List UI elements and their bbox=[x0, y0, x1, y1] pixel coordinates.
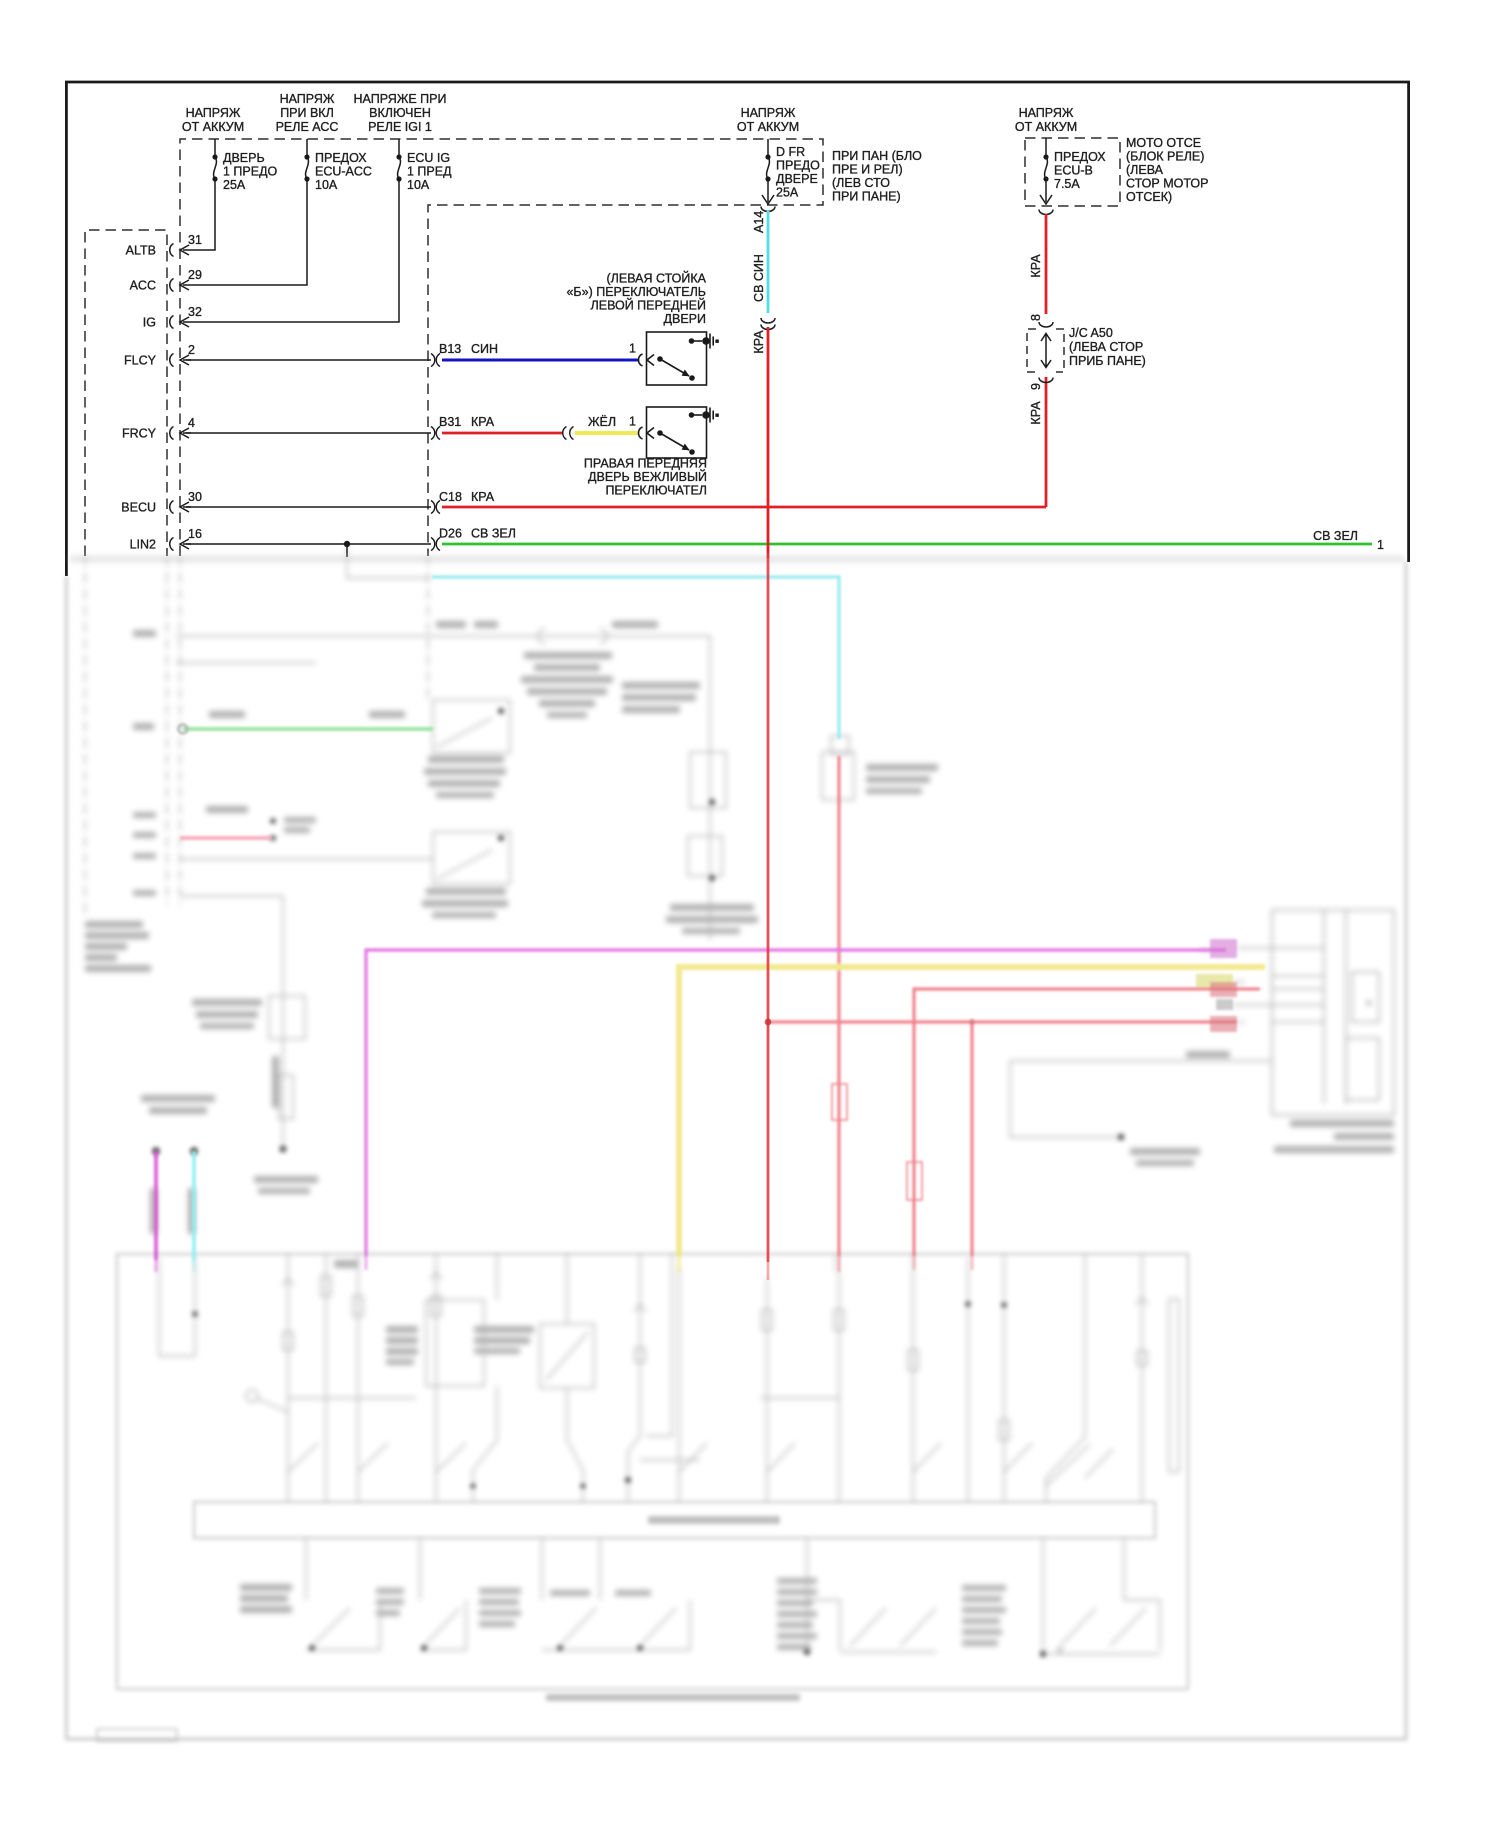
svg-text:ЖЁЛ: ЖЁЛ bbox=[588, 415, 616, 429]
svg-text:ECU-ACC: ECU-ACC bbox=[315, 165, 372, 179]
svg-text:ACC: ACC bbox=[130, 279, 156, 293]
svg-text:НАПРЯЖ: НАПРЯЖ bbox=[186, 106, 241, 120]
svg-text:D26: D26 bbox=[439, 527, 462, 541]
svg-text:КРА: КРА bbox=[1029, 401, 1043, 425]
svg-text:РЕЛЕ IGI 1: РЕЛЕ IGI 1 bbox=[368, 120, 432, 134]
svg-text:ALTB: ALTB bbox=[126, 244, 156, 258]
svg-text:29: 29 bbox=[188, 268, 202, 282]
svg-text:1 ПРЕД: 1 ПРЕД bbox=[407, 165, 452, 179]
svg-text:1: 1 bbox=[629, 415, 636, 429]
svg-text:FRCY: FRCY bbox=[122, 427, 157, 441]
svg-text:ПРЕДОХ: ПРЕДОХ bbox=[315, 151, 367, 165]
svg-text:10A: 10A bbox=[315, 178, 338, 192]
svg-text:НАПРЯЖ: НАПРЯЖ bbox=[741, 106, 796, 120]
svg-text:8: 8 bbox=[1029, 314, 1043, 321]
svg-text:30: 30 bbox=[188, 490, 202, 504]
svg-text:ПРЕДОХ: ПРЕДОХ bbox=[1054, 150, 1106, 164]
svg-text:1: 1 bbox=[629, 342, 636, 356]
svg-text:КРА: КРА bbox=[752, 330, 766, 354]
svg-text:ПРИ ВКЛ: ПРИ ВКЛ bbox=[280, 106, 334, 120]
svg-text:(ЛЕВА: (ЛЕВА bbox=[1126, 163, 1164, 177]
svg-text:РЕЛЕ АСС: РЕЛЕ АСС bbox=[276, 120, 339, 134]
svg-text:ПРИ ПАН (БЛО: ПРИ ПАН (БЛО bbox=[832, 149, 922, 163]
svg-text:10A: 10A bbox=[407, 178, 430, 192]
svg-text:25A: 25A bbox=[223, 178, 246, 192]
svg-text:9: 9 bbox=[1029, 383, 1043, 390]
svg-text:1: 1 bbox=[1377, 538, 1384, 552]
svg-text:ECU IG: ECU IG bbox=[407, 151, 450, 165]
svg-text:(ЛЕВ СТО: (ЛЕВ СТО bbox=[832, 176, 890, 190]
svg-text:25A: 25A bbox=[776, 186, 799, 200]
svg-text:LIN2: LIN2 bbox=[130, 538, 156, 552]
svg-text:2: 2 bbox=[188, 343, 195, 357]
svg-text:1 ПРЕДО: 1 ПРЕДО bbox=[223, 165, 278, 179]
svg-text:СИН: СИН bbox=[471, 342, 498, 356]
svg-text:НАПРЯЖ: НАПРЯЖ bbox=[1019, 106, 1074, 120]
svg-text:ПРИБ ПАНЕ): ПРИБ ПАНЕ) bbox=[1069, 354, 1146, 368]
svg-text:ПРЕ И РЕЛ): ПРЕ И РЕЛ) bbox=[832, 163, 903, 177]
svg-text:C18: C18 bbox=[439, 490, 462, 504]
svg-text:СВ ЗЕЛ: СВ ЗЕЛ bbox=[471, 527, 516, 541]
svg-text:СТОР МОТОР: СТОР МОТОР bbox=[1126, 177, 1209, 191]
svg-text:КРА: КРА bbox=[471, 490, 495, 504]
svg-text:ОТ АККУМ: ОТ АККУМ bbox=[1015, 120, 1077, 134]
svg-text:ОТСЕК): ОТСЕК) bbox=[1126, 190, 1172, 204]
svg-text:ДВЕРЬ: ДВЕРЬ bbox=[223, 151, 265, 165]
svg-text:КРА: КРА bbox=[471, 415, 495, 429]
svg-text:D FR: D FR bbox=[776, 145, 805, 159]
svg-text:BECU: BECU bbox=[121, 501, 156, 515]
svg-text:ПРИ ПАНЕ): ПРИ ПАНЕ) bbox=[832, 190, 901, 204]
svg-text:МОТО ОТСЕ: МОТО ОТСЕ bbox=[1126, 136, 1201, 150]
svg-text:16: 16 bbox=[188, 527, 202, 541]
svg-text:J/C A50: J/C A50 bbox=[1069, 326, 1113, 340]
svg-text:СВ ЗЕЛ: СВ ЗЕЛ bbox=[1313, 529, 1358, 543]
svg-text:ПЕРЕКЛЮЧАТЕЛ: ПЕРЕКЛЮЧАТЕЛ bbox=[605, 484, 707, 498]
svg-text:ЛЕВОЙ ПЕРЕДНЕЙ: ЛЕВОЙ ПЕРЕДНЕЙ bbox=[591, 298, 706, 313]
svg-text:ECU-B: ECU-B bbox=[1054, 164, 1093, 178]
svg-text:A14: A14 bbox=[752, 211, 766, 233]
svg-text:ДВЕРЕ: ДВЕРЕ bbox=[776, 172, 818, 186]
svg-text:FLCY: FLCY bbox=[124, 354, 157, 368]
svg-text:ОТ АККУМ: ОТ АККУМ bbox=[737, 120, 799, 134]
svg-text:(ЛЕВАЯ СТОЙКА: (ЛЕВАЯ СТОЙКА bbox=[607, 271, 707, 286]
svg-text:«Б») ПЕРЕКЛЮЧАТЕЛЬ: «Б») ПЕРЕКЛЮЧАТЕЛЬ bbox=[566, 285, 706, 299]
svg-text:СВ СИН: СВ СИН bbox=[752, 254, 766, 302]
svg-text:(ЛЕВА СТОР: (ЛЕВА СТОР bbox=[1069, 340, 1143, 354]
svg-text:32: 32 bbox=[188, 305, 202, 319]
svg-text:IG: IG bbox=[143, 316, 156, 330]
svg-text:ПРАВАЯ ПЕРЕДНЯЯ: ПРАВАЯ ПЕРЕДНЯЯ bbox=[584, 457, 707, 471]
svg-text:4: 4 bbox=[188, 416, 195, 430]
svg-text:B13: B13 bbox=[439, 342, 461, 356]
svg-text:НАПРЯЖЕ ПРИ: НАПРЯЖЕ ПРИ bbox=[354, 92, 447, 106]
svg-text:КРА: КРА bbox=[1029, 254, 1043, 278]
svg-text:31: 31 bbox=[188, 233, 202, 247]
svg-text:ПРЕДО: ПРЕДО bbox=[776, 159, 820, 173]
svg-text:B31: B31 bbox=[439, 415, 461, 429]
svg-text:ДВЕРИ: ДВЕРИ bbox=[664, 312, 706, 326]
svg-text:НАПРЯЖ: НАПРЯЖ bbox=[280, 92, 335, 106]
svg-text:(БЛОК РЕЛЕ): (БЛОК РЕЛЕ) bbox=[1126, 150, 1204, 164]
svg-text:ВКЛЮЧЕН: ВКЛЮЧЕН bbox=[369, 106, 431, 120]
svg-text:ДВЕРЬ ВЕЖЛИВЫЙ: ДВЕРЬ ВЕЖЛИВЫЙ bbox=[588, 469, 707, 484]
svg-text:7.5A: 7.5A bbox=[1054, 177, 1080, 191]
svg-text:ОТ АККУМ: ОТ АККУМ bbox=[182, 120, 244, 134]
